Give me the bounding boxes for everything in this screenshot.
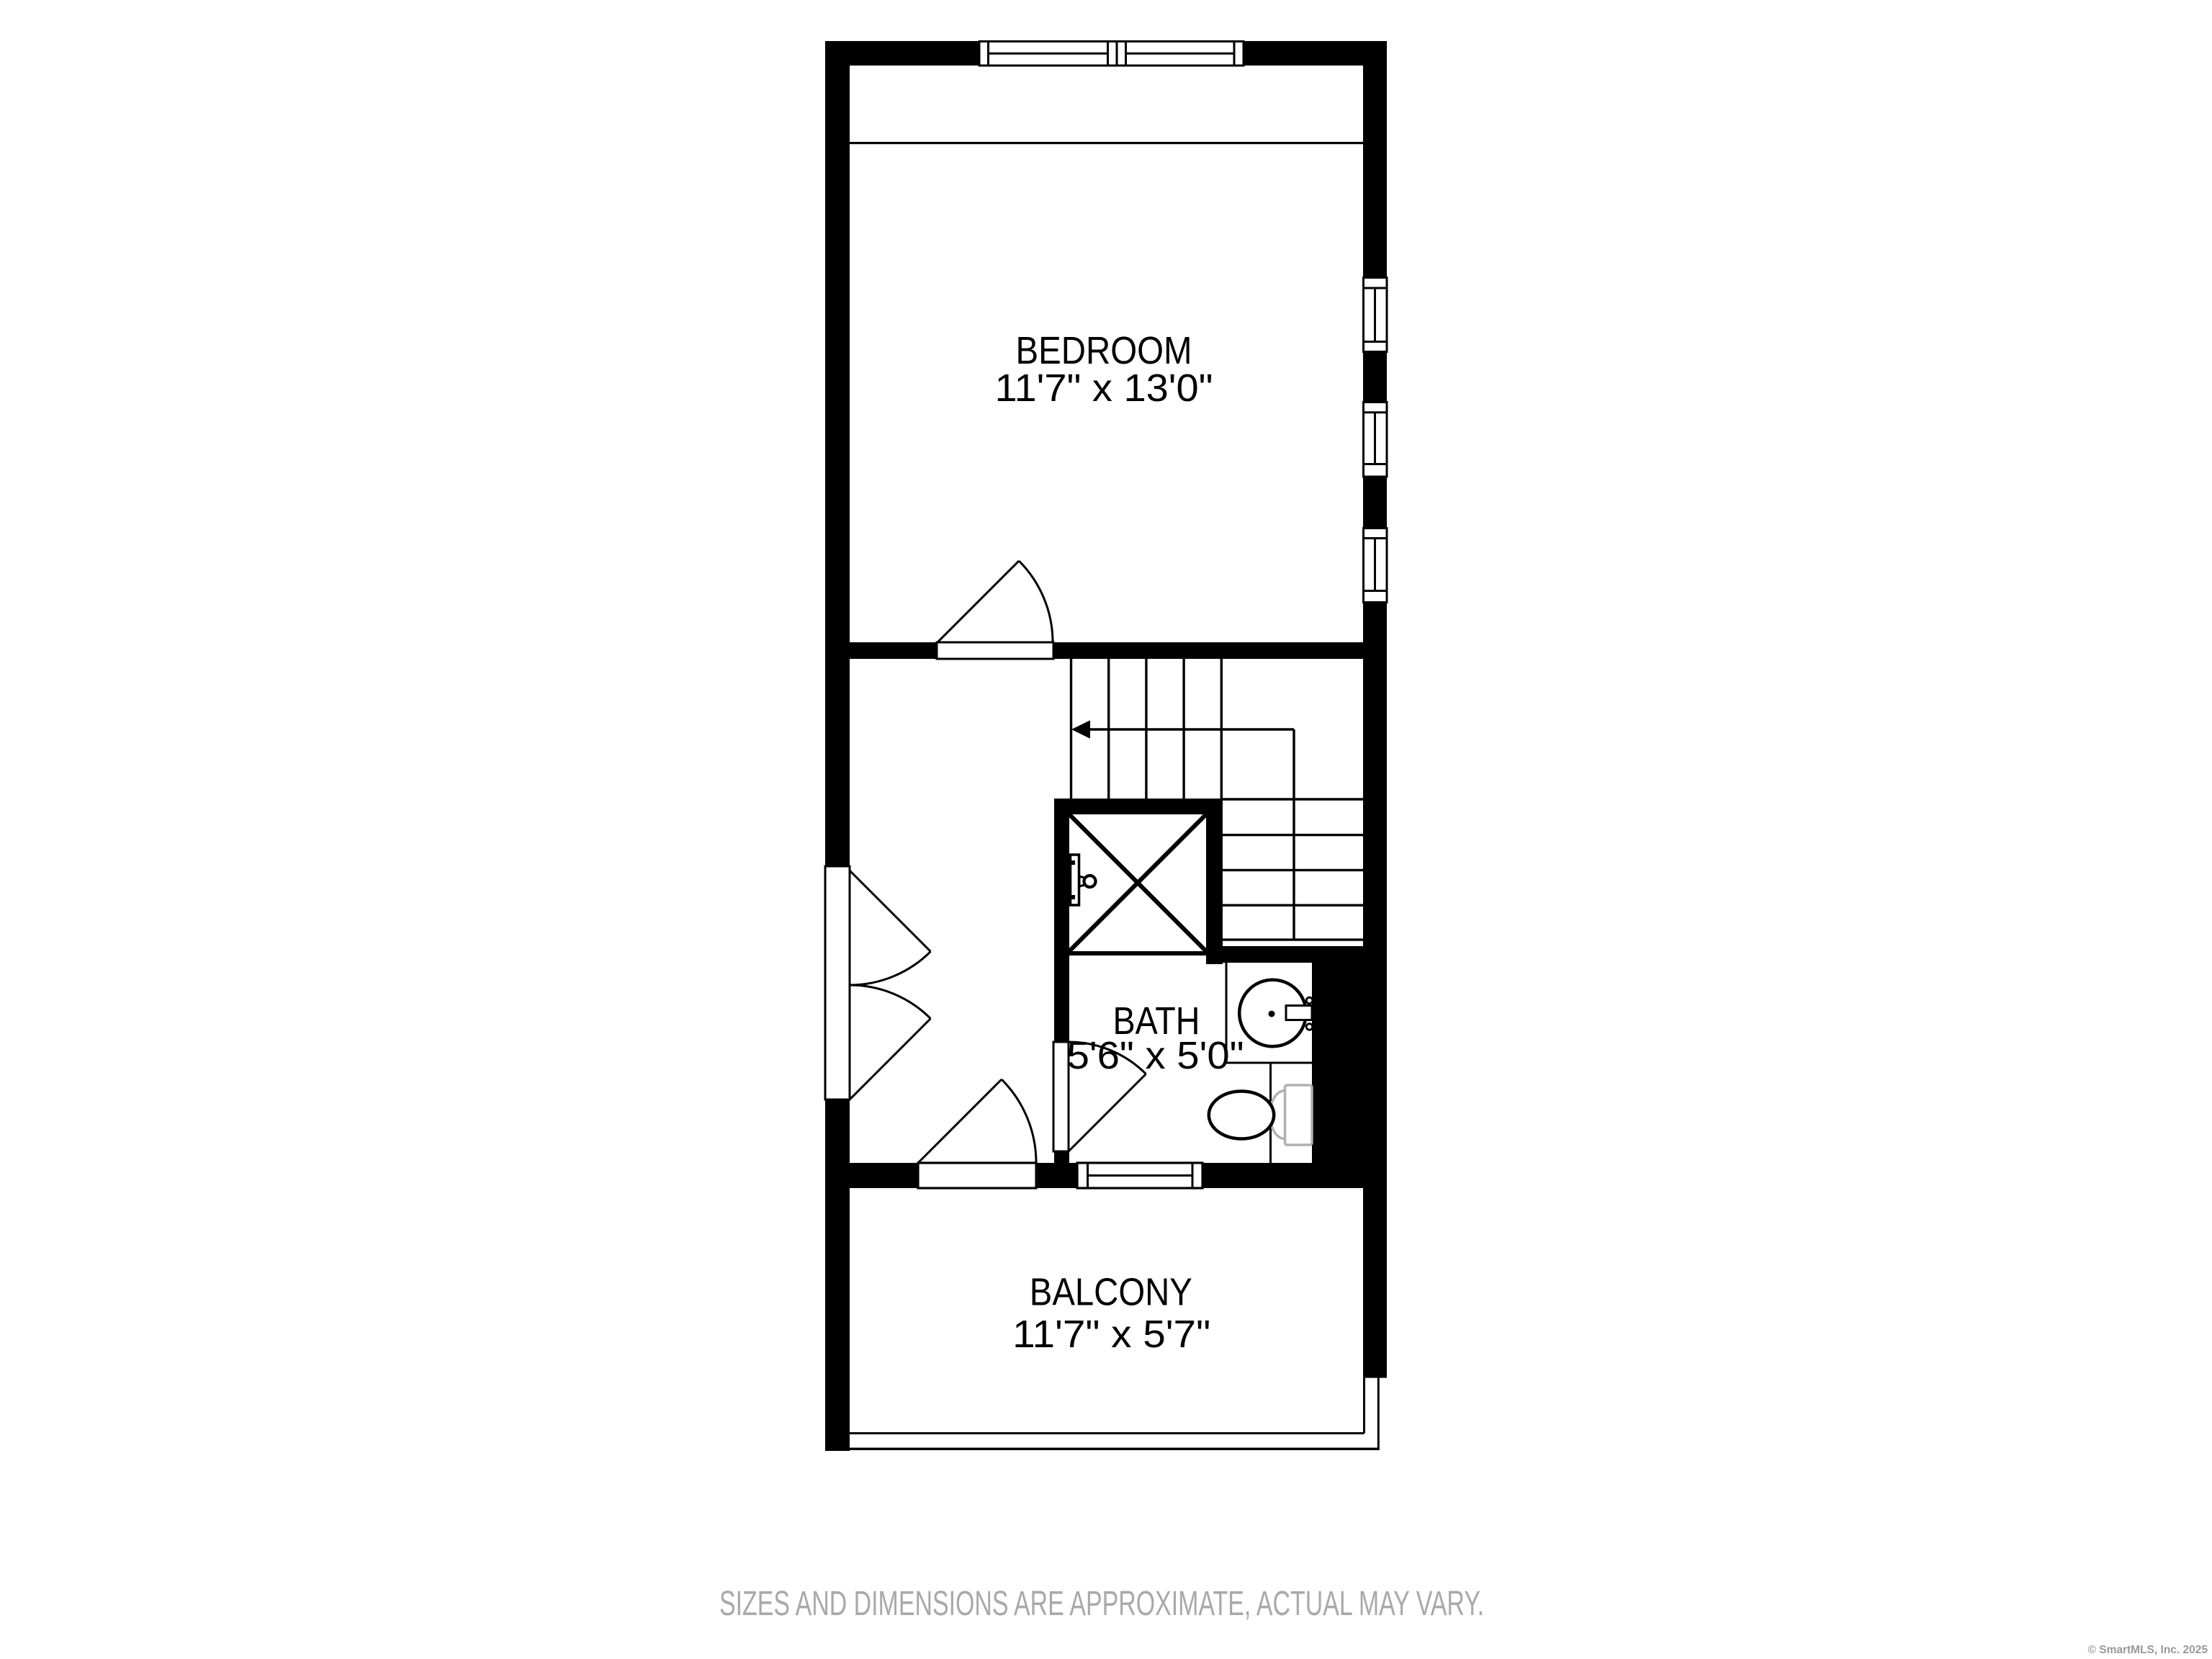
svg-text:11'7" x 13'0": 11'7" x 13'0": [995, 367, 1213, 410]
svg-text:BEDROOM: BEDROOM: [1016, 329, 1192, 372]
svg-text:BALCONY: BALCONY: [1030, 1271, 1192, 1314]
svg-text:SIZES AND DIMENSIONS ARE APPRO: SIZES AND DIMENSIONS ARE APPROXIMATE, AC…: [719, 1584, 1484, 1623]
svg-text:11'7" x 5'7": 11'7" x 5'7": [1012, 1313, 1210, 1356]
svg-text:© SmartMLS, Inc. 2025: © SmartMLS, Inc. 2025: [2088, 1644, 2208, 1656]
svg-text:5'6" x 5'0": 5'6" x 5'0": [1067, 1034, 1244, 1077]
